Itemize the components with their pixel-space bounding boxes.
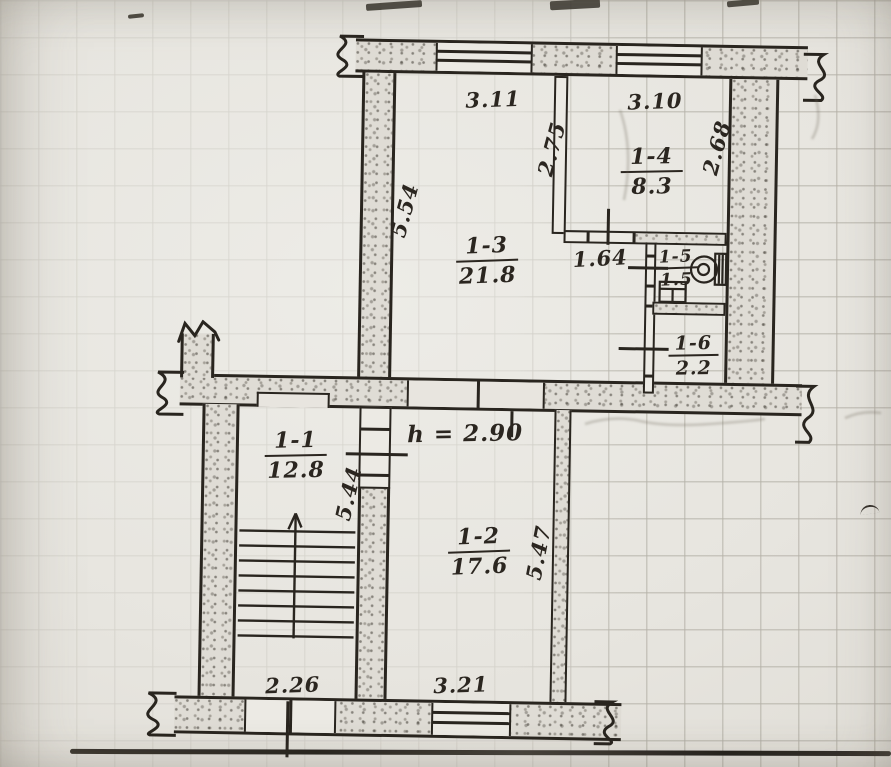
door-jamb <box>289 699 292 733</box>
room-number: 1-1 <box>264 427 327 457</box>
room-label-1-4: 1-4 8.3 <box>606 143 697 201</box>
room-area: 12.8 <box>251 457 341 485</box>
window-pane-line <box>437 50 532 54</box>
window <box>435 43 532 73</box>
dimension-corridor-width: 1.64 <box>562 244 639 273</box>
room-area: 2.2 <box>664 357 724 380</box>
door-jamb <box>644 374 653 377</box>
floor-plan: 3.11 3.10 2.75 2.68 5.54 1.64 5.44 5.47 … <box>0 0 891 767</box>
scanned-floor-plan-photo: 3.11 3.10 2.75 2.68 5.54 1.64 5.44 5.47 … <box>0 0 891 767</box>
window-pane-line <box>617 62 702 66</box>
room-label-1-3: 1-3 21.8 <box>441 231 533 290</box>
wall-top <box>355 38 808 80</box>
window <box>615 46 702 76</box>
stairwell-entry-opening <box>244 700 337 734</box>
dimension-line <box>619 347 669 350</box>
room-label-1-6: 1-6 2.2 <box>663 332 724 380</box>
room-label-1-2: 1-2 17.6 <box>433 522 525 581</box>
wall-room12-right <box>549 410 571 704</box>
door-jamb <box>477 381 480 409</box>
window-pane-line <box>617 53 702 57</box>
ceiling-height-note: h = 2.90 <box>407 419 517 448</box>
wall-break-icon <box>145 369 184 418</box>
wall-break-icon <box>136 689 177 740</box>
wall-break-icon <box>327 34 364 79</box>
wall-niche <box>257 392 330 408</box>
wall-break-icon <box>803 52 838 103</box>
wall-hall-room12-lower <box>354 486 390 703</box>
wall-bottom <box>174 695 622 741</box>
dimension-room12-wall-height: 5.47 <box>521 526 555 582</box>
wall-fill <box>654 304 723 314</box>
room-number: 1-5 <box>653 246 697 270</box>
door-jamb <box>586 231 589 242</box>
dimension-room12-width: 3.21 <box>422 671 499 699</box>
room-number: 1-3 <box>455 232 519 263</box>
room-number: 1-2 <box>447 523 511 554</box>
wall-stairwell-left <box>197 404 239 701</box>
room-area: 8.3 <box>607 173 697 201</box>
room-area: 21.8 <box>442 261 533 290</box>
staircase <box>235 504 357 646</box>
room-number: 1-6 <box>668 332 718 357</box>
window <box>431 703 512 736</box>
door-opening <box>407 380 545 408</box>
window-pane-line <box>432 711 510 715</box>
door-jamb <box>632 232 635 243</box>
room-area: 17.6 <box>434 552 525 581</box>
dimension-room13-width: 3.11 <box>455 85 532 113</box>
room-label-1-1: 1-1 12.8 <box>250 427 341 485</box>
wall-break-icon <box>594 699 629 748</box>
door-jamb <box>360 428 390 431</box>
wall-break-icon <box>795 382 826 445</box>
room-label-1-5: 1-5 1.5 <box>649 246 702 291</box>
window-pane-line <box>432 721 510 725</box>
dimension-stairs-width: 2.26 <box>254 671 331 699</box>
window-pane-line <box>437 59 532 63</box>
wall-break-icon <box>175 319 221 344</box>
room-number: 1-4 <box>620 143 683 173</box>
wall-middle <box>180 373 802 416</box>
room-area: 1.5 <box>650 269 703 291</box>
dimension-room14-width: 3.10 <box>617 87 694 115</box>
dimension-line <box>346 452 408 456</box>
